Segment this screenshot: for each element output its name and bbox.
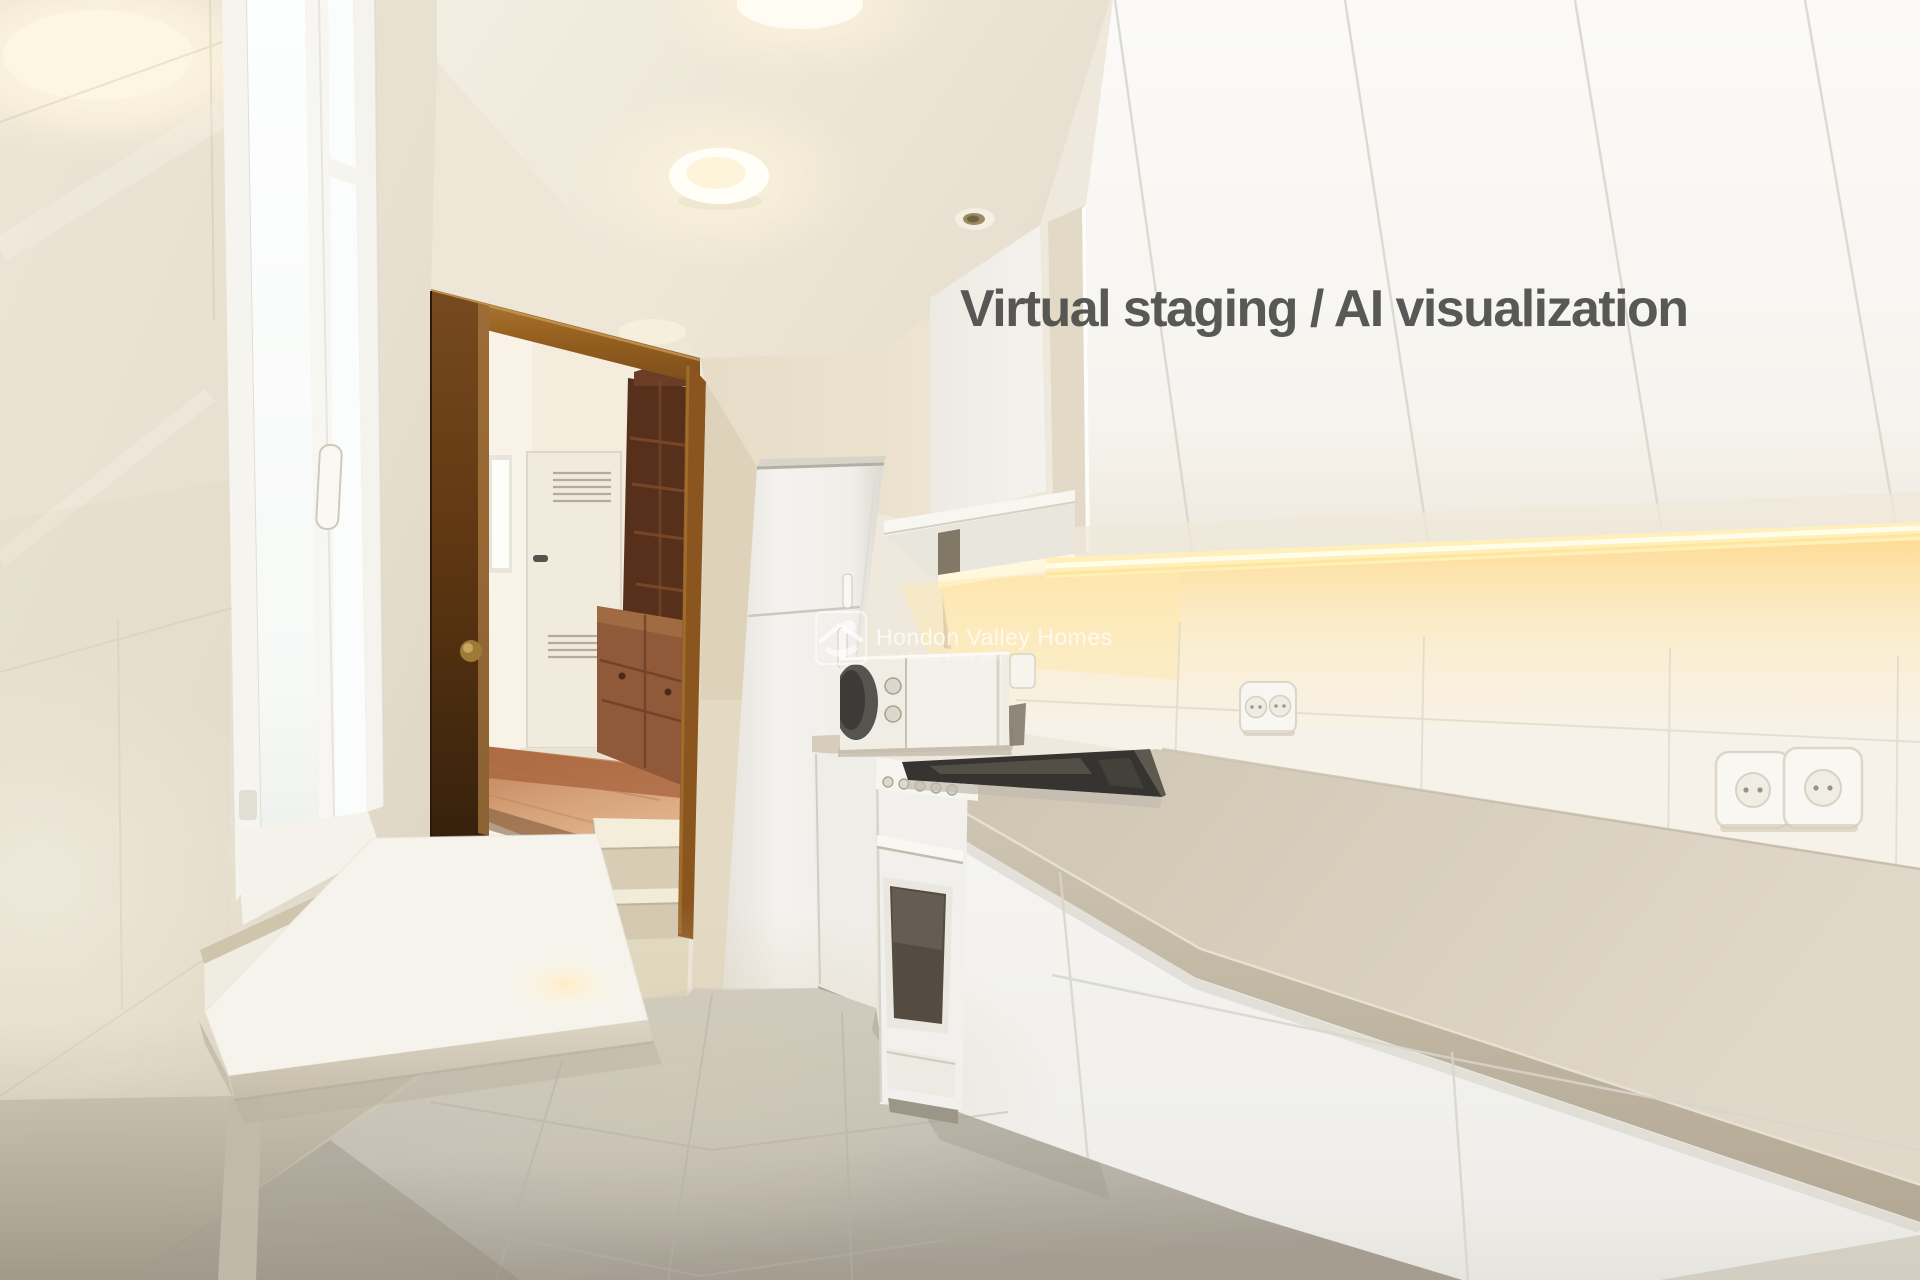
svg-text:VILLA SALES SINCE 2006: VILLA SALES SINCE 2006 (877, 652, 1003, 662)
svg-text:Hondon Valley Homes: Hondon Valley Homes (876, 624, 1113, 650)
svg-text:Virtual staging / AI visualiza: Virtual staging / AI visualization (960, 280, 1687, 338)
